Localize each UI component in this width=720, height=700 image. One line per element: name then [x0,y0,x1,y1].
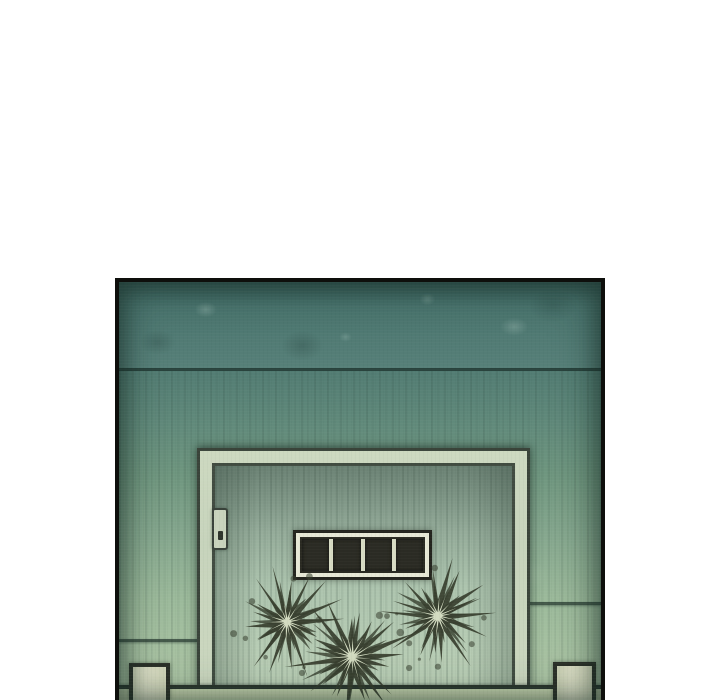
burst-fleck [306,573,313,580]
burst-fleck [263,655,268,660]
burst-fleck [384,613,390,619]
burst-fleck [395,612,398,615]
burst-fleck [249,598,255,604]
burst-fleck [481,615,487,621]
post-left [129,663,170,700]
burst-fleck [291,576,297,582]
burst-fleck [376,612,383,619]
burst-fleck [316,616,323,623]
burst-fleck [406,665,412,671]
burst-fleck [432,565,438,571]
page-background [0,0,720,700]
burst-fleck [406,640,412,646]
burst-fleck [469,641,475,647]
burst-fleck [397,629,405,637]
burst-fleck [243,636,248,641]
burst-fleck [418,658,421,661]
burst-fleck [435,664,441,670]
burst-fleck [299,670,305,676]
burst-fleck [230,630,237,637]
burst-fleck [302,665,306,669]
post-right [553,662,596,700]
splatter-layer [119,282,601,700]
comic-panel [115,278,605,700]
